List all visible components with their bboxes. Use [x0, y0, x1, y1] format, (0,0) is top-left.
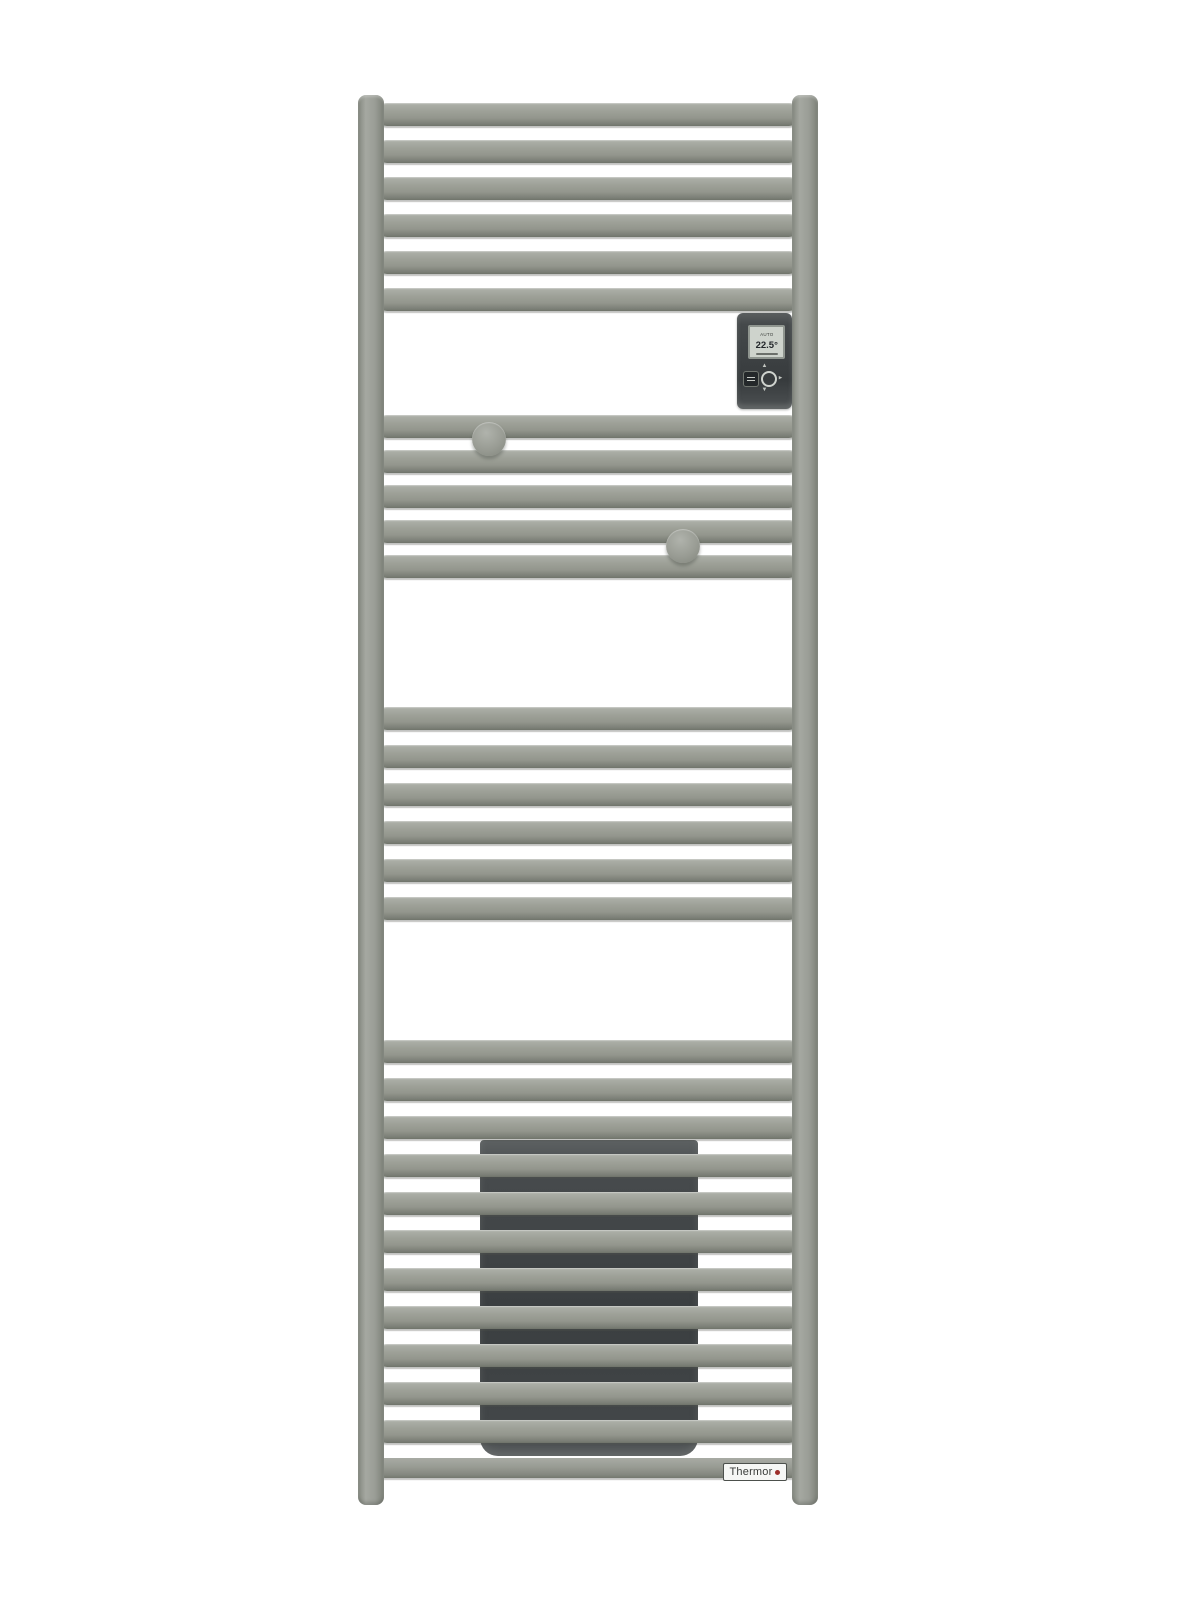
- boost-icon: [747, 377, 755, 378]
- radiator-bar: [376, 783, 800, 806]
- radiator-bar: [376, 707, 800, 730]
- radiator-bar: [376, 1192, 800, 1215]
- towel-hook-1: [472, 422, 506, 456]
- brand-name: Thermor: [730, 1467, 773, 1478]
- radiator-bar: [376, 1116, 800, 1139]
- towel-hook-2: [666, 529, 700, 563]
- radiator-bar: [376, 1078, 800, 1101]
- brand-badge: Thermor: [723, 1463, 787, 1481]
- control-buttons-row: ▸: [737, 370, 792, 386]
- radiator-bar: [376, 555, 800, 578]
- up-arrow-icon: ▲: [748, 363, 781, 369]
- mode-label: AUTO: [760, 332, 773, 337]
- brand-dot-icon: [775, 1470, 780, 1475]
- radiator-bar: [376, 1040, 800, 1063]
- radiator-bar: [376, 1382, 800, 1405]
- down-arrow-icon: ▼: [748, 387, 781, 393]
- radiator-bar: [376, 177, 800, 200]
- radiator-bar: [376, 288, 800, 311]
- mode-arrow-icon: ▸: [779, 375, 783, 382]
- radiator-bar: [376, 1230, 800, 1253]
- product-photo: AUTO 22.5° ▲ ▸ ▼ Thermor: [0, 0, 1200, 1600]
- radiator-bar: [376, 859, 800, 882]
- radiator-bar: [376, 485, 800, 508]
- radiator-bar: [376, 897, 800, 920]
- radiator-bar: [376, 214, 800, 237]
- temperature-value: 22.5°: [755, 340, 777, 350]
- radiator-bar: [376, 821, 800, 844]
- ok-button: [761, 371, 777, 387]
- right-post: [792, 95, 818, 1505]
- radiator-bar: [376, 1344, 800, 1367]
- radiator-bar: [376, 1306, 800, 1329]
- radiator-bar: [376, 1420, 800, 1443]
- radiator-bar: [376, 745, 800, 768]
- status-line: [756, 353, 778, 355]
- radiator-bar: [376, 415, 800, 438]
- radiator-bar: [376, 251, 800, 274]
- radiator-bar: [376, 520, 800, 543]
- heating-element-panel: [480, 1140, 698, 1456]
- radiator-bar: [376, 1154, 800, 1177]
- control-screen: AUTO 22.5°: [748, 325, 785, 359]
- towel-rail-radiator: AUTO 22.5° ▲ ▸ ▼ Thermor: [0, 0, 1200, 1600]
- radiator-bar: [376, 1268, 800, 1291]
- boost-button: [743, 371, 759, 387]
- radiator-bar: [376, 103, 800, 126]
- control-unit: AUTO 22.5° ▲ ▸ ▼: [737, 313, 792, 409]
- radiator-bar: [376, 140, 800, 163]
- radiator-bar: [376, 450, 800, 473]
- left-post: [358, 95, 384, 1505]
